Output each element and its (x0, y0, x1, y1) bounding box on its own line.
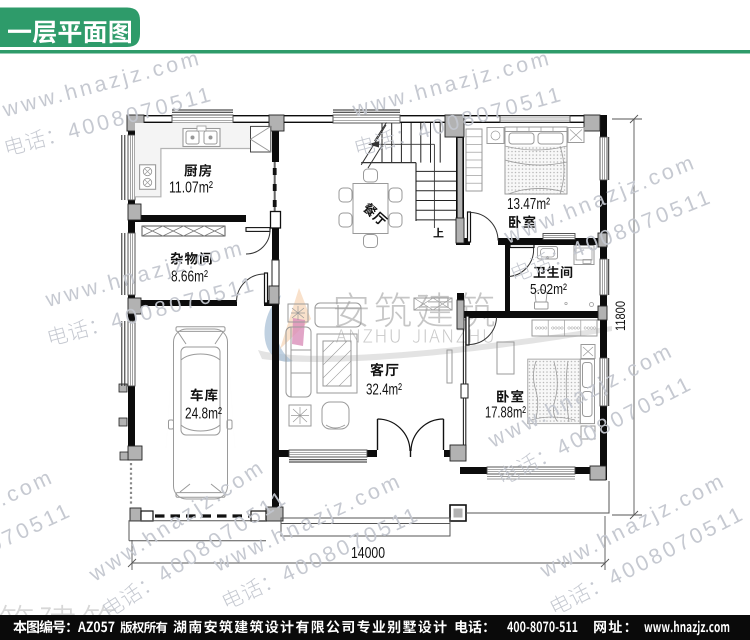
svg-text:11.07m²: 11.07m² (169, 180, 214, 197)
svg-text:32.4m²: 32.4m² (366, 382, 402, 399)
svg-text:24.8m²: 24.8m² (185, 406, 222, 423)
svg-text:11800: 11800 (612, 301, 628, 331)
svg-text:5.02m²: 5.02m² (530, 281, 567, 298)
